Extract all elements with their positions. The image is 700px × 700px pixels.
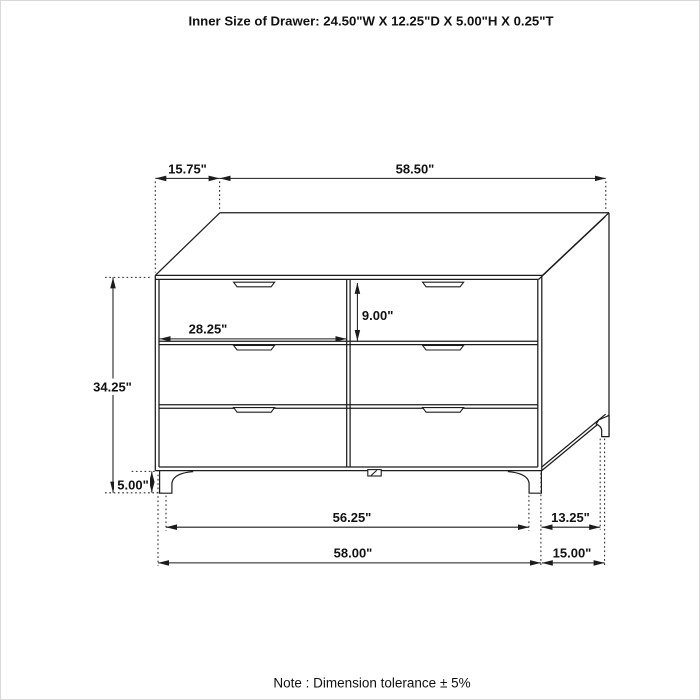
- dim-base-inner-width: 56.25": [166, 510, 529, 527]
- page-title: Inner Size of Drawer: 24.50"W X 12.25"D …: [188, 14, 553, 29]
- dim-label-base-inner-depth: 13.25": [551, 510, 590, 525]
- drawer-handle-icon: [234, 408, 275, 413]
- dresser-dimension-diagram: Inner Size of Drawer: 24.50"W X 12.25"D …: [0, 0, 700, 700]
- side-face: [542, 213, 609, 471]
- dim-top-depth: 15.75": [155, 162, 219, 179]
- dim-label-overall-width: 58.00": [334, 545, 373, 560]
- dim-label-leg-height: 5.00": [117, 477, 148, 492]
- top-face: [155, 213, 609, 280]
- drawer-handle-icon: [423, 345, 464, 350]
- dim-label-drawer-height: 9.00": [362, 308, 393, 323]
- dim-overall-depth: 15.00": [542, 545, 605, 563]
- dim-label-overall-depth: 15.00": [553, 545, 592, 560]
- front-left-leg: [160, 471, 193, 494]
- dim-label-drawer-width: 28.25": [189, 321, 228, 336]
- dim-overall-height: 34.25": [88, 277, 138, 492]
- drawer-handle-icon: [234, 345, 275, 350]
- dim-base-inner-depth: 13.25": [542, 510, 601, 527]
- drawer-handle-icon: [423, 408, 464, 413]
- dim-leg-height: 5.00": [114, 471, 152, 492]
- dim-label-overall-height: 34.25": [93, 380, 132, 395]
- tolerance-note: Note : Dimension tolerance ± 5%: [273, 676, 470, 691]
- drawer-bottom-right: [350, 408, 538, 467]
- dim-top-width: 58.50": [220, 162, 606, 179]
- drawer-top-left: [159, 279, 347, 341]
- drawer-handle-icon: [423, 282, 464, 287]
- back-right-leg: [596, 416, 609, 437]
- dim-label-top-depth: 15.75": [168, 162, 207, 177]
- front-right-leg: [508, 471, 541, 494]
- dim-overall-width: 58.00": [158, 545, 541, 563]
- front-face: [155, 275, 542, 470]
- drawer-bottom-left: [159, 408, 347, 467]
- drawer-middle-right: [350, 345, 538, 405]
- center-foot: [368, 470, 381, 476]
- drawer-handle-icon: [234, 282, 275, 287]
- dim-label-top-width: 58.50": [396, 162, 435, 177]
- drawer-middle-left: [159, 345, 347, 405]
- diagram-svg: Inner Size of Drawer: 24.50"W X 12.25"D …: [1, 1, 700, 700]
- dim-label-base-inner-width: 56.25": [333, 510, 372, 525]
